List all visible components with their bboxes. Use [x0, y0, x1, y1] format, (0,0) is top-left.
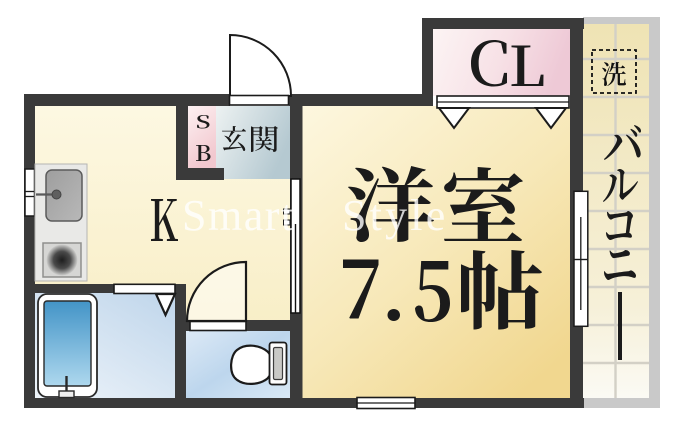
svg-text:Smart: Smart — [182, 191, 295, 240]
svg-text:Style: Style — [342, 191, 448, 240]
